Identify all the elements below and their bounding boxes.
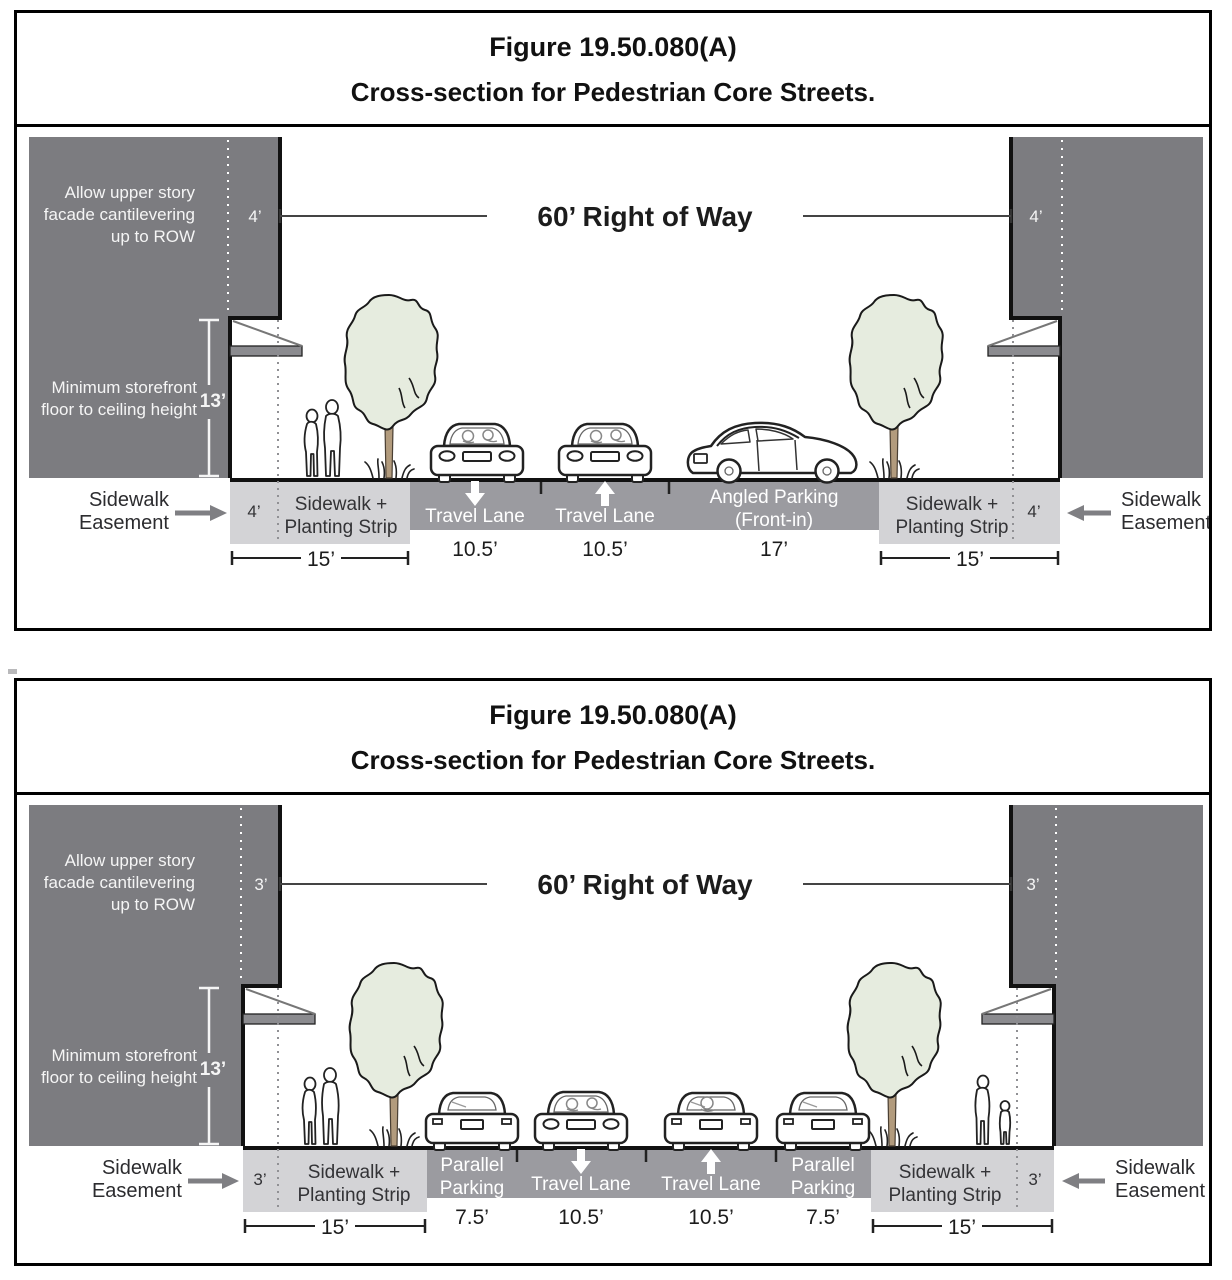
- lane-widths: 10.5’ 10.5’ 17’: [452, 538, 788, 561]
- lane-label-2: Travel Lane: [531, 1174, 631, 1195]
- left-sidewalk-dimension: 15’: [245, 1216, 425, 1239]
- right-easement-label-2: Easement: [1121, 512, 1209, 534]
- right-arrow-icon: [210, 505, 227, 521]
- figure-number: Figure 19.50.080(A): [489, 700, 737, 731]
- lane-label-4b: Parking: [791, 1178, 855, 1199]
- right-awning: [982, 1014, 1054, 1024]
- storefront-note-line1: Minimum storefront: [52, 378, 198, 397]
- left-easement-label-2: Easement: [79, 512, 169, 534]
- right-setback-label: 3’: [1026, 875, 1039, 894]
- right-easement-label-1: Sidewalk: [1121, 489, 1202, 511]
- figure-caption: Cross-section for Pedestrian Core Street…: [351, 77, 876, 108]
- left-sidewalk-label-1: Sidewalk +: [308, 1162, 400, 1183]
- lane-label-3a: Angled Parking: [710, 487, 839, 508]
- right-sidewalk-total: 15’: [948, 1216, 976, 1239]
- figure-caption: Cross-section for Pedestrian Core Street…: [351, 745, 876, 776]
- right-setback-label: 4’: [1029, 207, 1042, 226]
- pedestrians-left: [303, 1068, 339, 1144]
- left-awning-strut: [246, 989, 315, 1014]
- right-sidewalk-total: 15’: [956, 548, 984, 571]
- left-awning-strut: [233, 321, 302, 346]
- right-easement-callout: Sidewalk Easement: [1067, 489, 1209, 534]
- car-parallel-parking-right: [777, 1093, 869, 1150]
- right-sidewalk-label-1: Sidewalk +: [906, 494, 998, 515]
- right-of-way-label: 60’ Right of Way: [537, 869, 753, 900]
- lane-width-2: 10.5’: [582, 538, 628, 561]
- car-travel-lane-south: [431, 424, 523, 482]
- lane-label-1a: Parallel: [440, 1155, 503, 1176]
- left-sidewalk-label-2: Planting Strip: [284, 517, 397, 538]
- left-easement-width: 3’: [253, 1170, 266, 1189]
- right-of-way-label: 60’ Right of Way: [537, 201, 753, 232]
- right-sidewalk-label-1: Sidewalk +: [899, 1162, 991, 1183]
- right-building: [982, 805, 1203, 1146]
- lane-width-1: 10.5’: [452, 538, 498, 561]
- right-easement-label-2: Easement: [1115, 1180, 1205, 1202]
- left-arrow-icon: [1067, 505, 1084, 521]
- scan-artifact: [8, 669, 17, 674]
- lane-width-4: 7.5’: [806, 1206, 840, 1229]
- left-easement-label-1: Sidewalk: [102, 1157, 183, 1179]
- right-awning: [988, 346, 1060, 356]
- left-easement-callout: Sidewalk Easement: [79, 489, 227, 534]
- storefront-note-line1: Minimum storefront: [52, 1046, 198, 1065]
- storefront-height-label: 13’: [200, 1059, 226, 1080]
- right-sidewalk-dimension: 15’: [881, 548, 1058, 571]
- right-sidewalk-label-2: Planting Strip: [888, 1185, 1001, 1206]
- car-parallel-parking-left: [426, 1093, 518, 1150]
- right-easement-label-1: Sidewalk: [1115, 1157, 1196, 1179]
- left-sidewalk-label-2: Planting Strip: [297, 1185, 410, 1206]
- figure-number: Figure 19.50.080(A): [489, 32, 737, 63]
- cross-section-diagram-angled-parking: Allow upper story facade cantilevering u…: [17, 127, 1209, 625]
- car-travel-lane-south: [535, 1092, 627, 1150]
- right-easement-width: 4’: [1027, 502, 1040, 521]
- lane-label-1b: Parking: [440, 1178, 504, 1199]
- storefront-height-label: 13’: [200, 391, 226, 412]
- cantilever-note-line2: facade cantilevering: [44, 873, 195, 892]
- left-sidewalk-total: 15’: [307, 548, 335, 571]
- cross-section-diagram-parallel-parking: Allow upper story facade cantilevering u…: [17, 795, 1209, 1260]
- lane-width-3: 10.5’: [688, 1206, 734, 1229]
- street-tree-right: [850, 295, 943, 478]
- lane-label-4a: Parallel: [791, 1155, 854, 1176]
- right-sidewalk-label-2: Planting Strip: [895, 517, 1008, 538]
- cantilever-note-line1: Allow upper story: [65, 183, 196, 202]
- right-of-way-dimension: 60’ Right of Way: [280, 869, 1011, 900]
- right-of-way-dimension: 60’ Right of Way: [280, 201, 1011, 232]
- figure-panel-bottom: Figure 19.50.080(A) Cross-section for Pe…: [14, 678, 1212, 1266]
- figure-panel-top: Figure 19.50.080(A) Cross-section for Pe…: [14, 10, 1212, 631]
- left-arrow-icon: [1062, 1173, 1079, 1189]
- right-sidewalk-dimension: 15’: [873, 1216, 1052, 1239]
- storefront-note-line2: floor to ceiling height: [41, 400, 197, 419]
- lane-width-1: 7.5’: [455, 1206, 489, 1229]
- cantilever-note-line2: facade cantilevering: [44, 205, 195, 224]
- right-building: [988, 137, 1203, 478]
- left-awning: [243, 1014, 315, 1024]
- lane-label-1: Travel Lane: [425, 506, 525, 527]
- cantilever-note-line1: Allow upper story: [65, 851, 196, 870]
- street-tree-left: [345, 295, 438, 478]
- cantilever-note-line3: up to ROW: [111, 227, 195, 246]
- left-easement-label-2: Easement: [92, 1180, 182, 1202]
- car-travel-lane-north: [665, 1093, 757, 1150]
- right-arrow-icon: [222, 1173, 239, 1189]
- document-page: Figure 19.50.080(A) Cross-section for Pe…: [0, 0, 1232, 1280]
- left-setback-label: 4’: [248, 207, 261, 226]
- right-easement-callout: Sidewalk Easement: [1062, 1157, 1205, 1202]
- figure-title-block: Figure 19.50.080(A) Cross-section for Pe…: [17, 13, 1209, 127]
- left-sidewalk-dimension: 15’: [232, 548, 408, 571]
- lane-width-2: 10.5’: [558, 1206, 604, 1229]
- car-angled-parking: [688, 423, 857, 483]
- left-awning: [230, 346, 302, 356]
- left-setback-label: 3’: [254, 875, 267, 894]
- lane-label-2: Travel Lane: [555, 506, 655, 527]
- pedestrians: [305, 400, 341, 476]
- figure-title-block: Figure 19.50.080(A) Cross-section for Pe…: [17, 681, 1209, 795]
- right-easement-width: 3’: [1028, 1170, 1041, 1189]
- left-sidewalk-total: 15’: [321, 1216, 349, 1239]
- lane-width-3: 17’: [760, 538, 788, 561]
- lane-label-3b: (Front-in): [735, 510, 813, 531]
- cantilever-note-line3: up to ROW: [111, 895, 195, 914]
- lane-label-3: Travel Lane: [661, 1174, 761, 1195]
- left-easement-width: 4’: [247, 502, 260, 521]
- pedestrians-right: [975, 1076, 1010, 1145]
- left-sidewalk-label-1: Sidewalk +: [295, 494, 387, 515]
- right-awning-strut: [988, 321, 1057, 346]
- lane-widths: 7.5’ 10.5’ 10.5’ 7.5’: [455, 1206, 840, 1229]
- storefront-note-line2: floor to ceiling height: [41, 1068, 197, 1087]
- left-easement-callout: Sidewalk Easement: [92, 1157, 239, 1202]
- left-easement-label-1: Sidewalk: [89, 489, 170, 511]
- car-travel-lane-north: [559, 424, 651, 482]
